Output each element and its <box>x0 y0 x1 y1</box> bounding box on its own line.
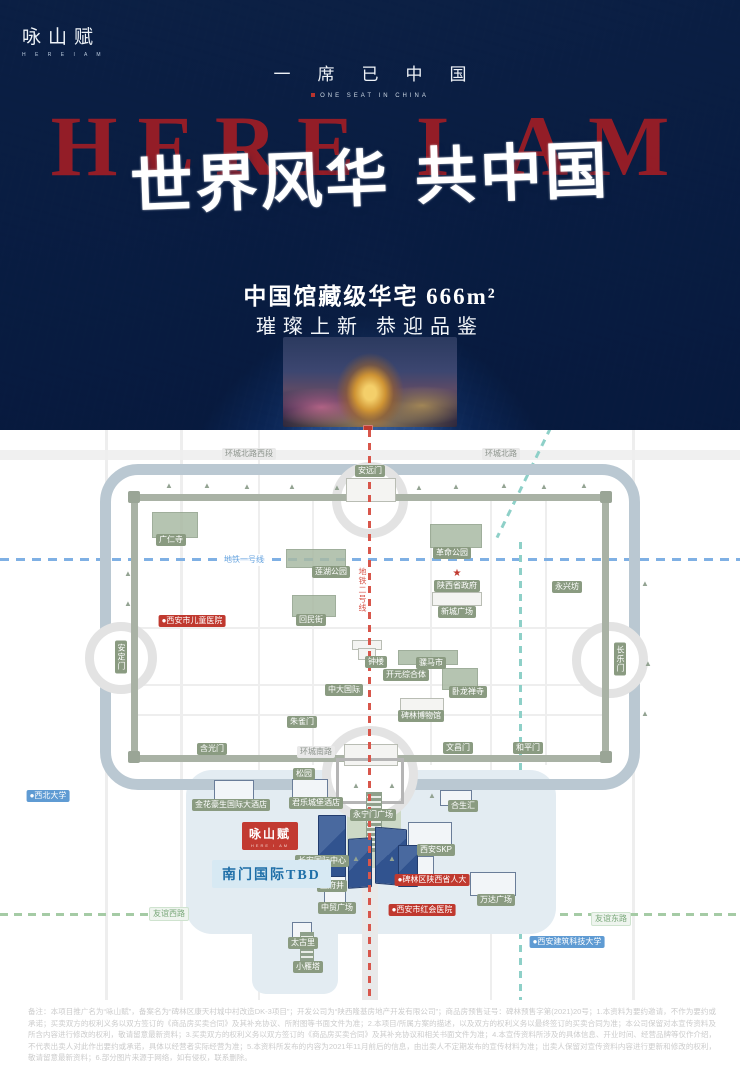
map-label: ★ <box>450 567 465 581</box>
tree-icon: ▲ <box>333 484 341 492</box>
project-location-label: 咏山赋 HERE I AM <box>242 822 298 850</box>
wall-corner-tower <box>128 491 140 503</box>
tree-icon: ▲ <box>352 782 360 790</box>
tree-icon: ▲ <box>124 600 132 608</box>
sketch-provincial-gov <box>432 592 482 606</box>
tree-icon: ▲ <box>644 660 652 668</box>
tree-icon: ▲ <box>203 482 211 490</box>
sketch-geming-park <box>430 524 482 548</box>
map-label: 永宁门广场 <box>350 809 396 821</box>
wall-corner-tower <box>600 491 612 503</box>
tagline: 一席已中国 <box>0 60 740 85</box>
map-label: 回民街 <box>296 614 326 626</box>
map-label: 长乐门 <box>614 643 626 676</box>
tree-icon: ▲ <box>580 482 588 490</box>
map-label: 莲湖公园 <box>312 566 350 578</box>
tree-icon: ▲ <box>243 483 251 491</box>
wall-corner-tower <box>600 751 612 763</box>
map-label: 革命公园 <box>433 547 471 559</box>
tree-icon: ▲ <box>641 710 649 718</box>
map-label: 含光门 <box>197 743 227 755</box>
tree-icon: ▲ <box>124 570 132 578</box>
map-label: 松园 <box>293 768 315 780</box>
map-label: 小雁塔 <box>293 961 323 973</box>
map-label: ●西安市儿童医院 <box>159 615 226 627</box>
map-label: 钟楼 <box>365 656 387 668</box>
map-label: 广仁寺 <box>156 534 186 546</box>
tagline-english: ONE SEAT IN CHINA <box>0 93 740 99</box>
tree-icon: ▲ <box>428 792 436 800</box>
map-label: 陕西省政府 <box>434 580 480 592</box>
map-label: 卧龙禅寺 <box>449 686 487 698</box>
sketch-wanda-plaza <box>470 872 516 896</box>
map-label: 中大国际 <box>325 684 363 696</box>
map-label: 万达广场 <box>477 894 515 906</box>
project-label-subtitle: HERE I AM <box>249 843 291 848</box>
map-label: 西安SKP <box>417 844 455 856</box>
red-dot-icon <box>311 93 315 97</box>
map-label: 地铁一号线 <box>221 554 267 566</box>
brand-logo-title: 咏山赋 <box>22 22 105 49</box>
south-gate-tbd-label: 南门国际TBD <box>212 860 331 888</box>
brand-logo-subtitle: H E R E I A M <box>22 52 105 58</box>
map-label: 环城南路 <box>297 746 335 758</box>
map-label: ●西安市红会医院 <box>389 904 456 916</box>
map-label: 新城广场 <box>438 606 476 618</box>
tree-icon: ▲ <box>388 782 396 790</box>
hero-poster: 咏山赋 H E R E I A M HERE I AM 世界风华 共中国 一席已… <box>0 0 740 430</box>
wall-corner-tower <box>128 751 140 763</box>
map-label: 文昌门 <box>443 742 473 754</box>
map-label: 环城北路 <box>482 448 520 460</box>
tree-icon: ▲ <box>452 483 460 491</box>
tree-icon: ▲ <box>388 855 396 863</box>
map-label: ●碑林区陕西省人大 <box>395 874 470 886</box>
map-label: 中贸广场 <box>318 902 356 914</box>
map-label: ●西北大学 <box>27 790 70 802</box>
tree-icon: ▲ <box>540 483 548 491</box>
tree-icon: ▲ <box>641 580 649 588</box>
map-label: 碑林博物馆 <box>398 710 444 722</box>
metro-line-2 <box>368 430 371 1000</box>
map-label: 友谊西路 <box>149 907 189 921</box>
map-label: 和平门 <box>513 742 543 754</box>
map-label: 朱雀门 <box>287 716 317 728</box>
map-label: 安远门 <box>355 465 385 477</box>
map-label: 合生汇 <box>448 800 478 812</box>
spec-line-invite: 璀璨上新 恭迎品鉴 <box>0 310 740 339</box>
map-label: ●西安建筑科技大学 <box>530 936 605 948</box>
tree-icon: ▲ <box>352 855 360 863</box>
brand-logo: 咏山赋 H E R E I A M <box>22 22 105 58</box>
tree-icon: ▲ <box>165 482 173 490</box>
map-label: 开元综合体 <box>383 669 429 681</box>
city-night-photo <box>283 337 457 427</box>
map-label: 骡马市 <box>416 657 446 669</box>
spec-line-area: 中国馆藏级华宅 666m² <box>0 277 740 311</box>
map-label: 安定门 <box>115 641 127 674</box>
map-label: 永兴坊 <box>552 581 582 593</box>
map-label: 友谊东路 <box>591 912 631 926</box>
map-label: 君乐城堡酒店 <box>289 797 343 809</box>
map-label: 地铁二号线 <box>356 565 368 616</box>
legal-disclaimer: 备注：本项目推广名为“咏山赋”，备案名为“碑林区康天村城中村改造DK-3项目”；… <box>28 1006 716 1064</box>
tree-icon: ▲ <box>415 484 423 492</box>
map-label: 金花豪生国际大酒店 <box>192 799 270 811</box>
location-map: ▲ ▲ ▲ ▲ ▲ ▲ ▲ ▲ ▲ ▲ ▲ ▲ ▲ ▲ ▲ ▲ ▲ ▲ ▲ ▲ … <box>0 430 740 1000</box>
map-label: 太古里 <box>288 937 318 949</box>
tree-icon: ▲ <box>288 483 296 491</box>
project-label-title: 咏山赋 <box>249 825 291 842</box>
map-label: 环城北路西段 <box>222 448 276 460</box>
sketch-anyuanmen-gate <box>346 478 396 502</box>
poster-page: 咏山赋 H E R E I A M HERE I AM 世界风华 共中国 一席已… <box>0 0 740 1077</box>
tree-icon: ▲ <box>500 482 508 490</box>
